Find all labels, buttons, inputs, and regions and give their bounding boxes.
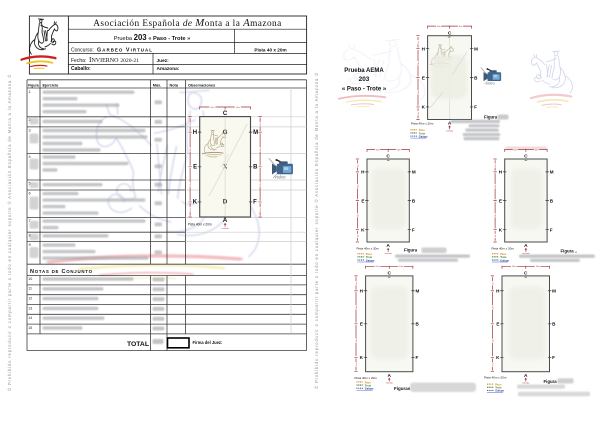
svg-text:Máx.: Máx. — [153, 84, 161, 88]
svg-text:H: H — [193, 130, 197, 136]
svg-text:C: C — [448, 30, 452, 36]
svg-text:E: E — [422, 75, 425, 80]
svg-text:6m: 6m — [357, 234, 359, 237]
svg-text:10m: 10m — [399, 266, 403, 268]
svg-text:6m: 6m — [190, 123, 192, 126]
svg-text:15: 15 — [28, 326, 32, 330]
svg-text:C: C — [386, 154, 390, 160]
svg-text:Pista 40m x 20m: Pista 40m x 20m — [492, 247, 515, 251]
svg-text:14m: 14m — [495, 213, 497, 217]
svg-text:14: 14 — [28, 316, 32, 320]
svg-text:10m: 10m — [536, 266, 540, 268]
svg-text:E: E — [361, 198, 364, 203]
svg-text:Figura: Figura — [544, 379, 558, 384]
svg-text:6m: 6m — [260, 208, 262, 211]
svg-text:E: E — [360, 322, 363, 327]
svg-text:10m: 10m — [376, 149, 380, 151]
svg-text:11: 11 — [28, 287, 32, 291]
svg-text:F: F — [550, 227, 553, 232]
svg-text:« Paso - Trote »: « Paso - Trote » — [342, 87, 387, 93]
svg-text:10m: 10m — [534, 149, 538, 151]
svg-text:Prueba AEMA: Prueba AEMA — [344, 68, 384, 74]
svg-text:6m: 6m — [495, 234, 497, 237]
svg-text:Figura: Figura — [404, 248, 418, 253]
svg-text:F: F — [474, 105, 477, 110]
svg-text:Fecha:: Fecha: — [71, 58, 86, 64]
svg-text:Concurso:: Concurso: — [71, 47, 94, 53]
svg-text:C: C — [223, 111, 228, 117]
svg-text:Amazona:: Amazona: — [157, 66, 180, 72]
svg-text:14m: 14m — [260, 147, 262, 151]
svg-text:Figura: Figura — [28, 83, 38, 87]
svg-text:B: B — [253, 165, 258, 171]
svg-text:6m: 6m — [495, 164, 497, 167]
svg-text:6m: 6m — [260, 123, 262, 126]
svg-text:video: video — [486, 82, 495, 86]
svg-text:Ejercicio: Ejercicio — [43, 84, 60, 88]
svg-text:M: M — [474, 46, 478, 51]
svg-text:F: F — [416, 355, 419, 360]
svg-text:Pista 40m x 20m: Pista 40m x 20m — [484, 375, 507, 379]
svg-text:6m: 6m — [190, 208, 192, 211]
svg-text:C: C — [524, 154, 528, 160]
svg-text:14m: 14m — [492, 338, 494, 342]
svg-text:10m: 10m — [375, 266, 379, 268]
svg-text:Galope: Galope — [500, 258, 509, 262]
svg-text:Pista 40m x 20m: Pista 40m x 20m — [355, 376, 378, 380]
svg-text:14m: 14m — [357, 184, 359, 188]
svg-text:14m: 14m — [190, 182, 192, 186]
svg-text:6m: 6m — [357, 164, 359, 167]
svg-text:Pista 40m x 20m: Pista 40m x 20m — [357, 247, 380, 251]
svg-text:C: C — [524, 271, 528, 277]
svg-text:14m: 14m — [260, 182, 262, 186]
svg-text:Firma del Juez:: Firma del Juez: — [193, 340, 223, 345]
svg-text:9: 9 — [29, 243, 31, 247]
svg-text:Figura ..: Figura .. — [561, 248, 578, 253]
svg-text:10m: 10m — [459, 26, 463, 28]
svg-text:A: A — [223, 218, 228, 224]
svg-text:Galope: Galope — [365, 387, 374, 391]
svg-text:E: E — [499, 198, 502, 203]
svg-text:6m: 6m — [356, 282, 358, 285]
svg-text:14m: 14m — [190, 147, 192, 151]
svg-text:14m: 14m — [495, 184, 497, 188]
svg-text:Asociación Española de Monta a: Asociación Española de Monta a la Amazon… — [93, 17, 281, 29]
svg-text:© Prohibido reproducir o compa: © Prohibido reproducir o compartir parte… — [7, 74, 12, 391]
svg-text:10m: 10m — [437, 26, 441, 28]
svg-text:10m: 10m — [397, 149, 401, 151]
svg-text:6m: 6m — [492, 363, 494, 366]
svg-text:13: 13 — [28, 306, 32, 310]
svg-text:4: 4 — [29, 155, 31, 159]
svg-text:M: M — [412, 170, 416, 175]
svg-text:K: K — [193, 200, 198, 206]
svg-text:entrada: entrada — [386, 382, 394, 385]
svg-text:F: F — [253, 200, 257, 206]
svg-text:Pista 40m x 20m: Pista 40m x 20m — [411, 122, 434, 126]
svg-text:1: 1 — [29, 90, 31, 94]
svg-text:10m: 10m — [236, 107, 240, 109]
svg-text:E: E — [193, 165, 197, 171]
svg-text:12: 12 — [28, 297, 32, 301]
svg-text:entrada: entrada — [385, 252, 393, 255]
svg-text:TOTAL: TOTAL — [127, 341, 149, 348]
svg-text:M: M — [416, 289, 420, 294]
svg-text:M: M — [253, 130, 258, 136]
svg-text:14m: 14m — [357, 213, 359, 217]
svg-text:F: F — [552, 355, 555, 360]
svg-text:6m: 6m — [418, 111, 420, 114]
svg-text:14m: 14m — [356, 338, 358, 342]
svg-text:3: 3 — [29, 128, 31, 132]
svg-text:entrada: entrada — [522, 252, 530, 255]
svg-text:M: M — [552, 289, 556, 294]
svg-text:E: E — [496, 322, 499, 327]
svg-text:video: video — [275, 175, 286, 180]
svg-text:Observaciones: Observaciones — [188, 84, 215, 88]
svg-text:10m: 10m — [513, 149, 517, 151]
svg-text:entrada: entrada — [446, 129, 454, 132]
svg-text:Juez:: Juez: — [157, 58, 170, 64]
svg-text:Galope: Galope — [366, 258, 375, 262]
svg-text:10m: 10m — [512, 266, 516, 268]
svg-text:14m: 14m — [418, 61, 420, 65]
svg-text:M: M — [550, 170, 554, 175]
svg-text:14m: 14m — [418, 90, 420, 94]
svg-text:10m: 10m — [210, 107, 214, 109]
svg-text:6m: 6m — [418, 40, 420, 43]
svg-text:6m: 6m — [492, 282, 494, 285]
svg-text:Caballo:: Caballo: — [71, 66, 91, 72]
svg-text:Figura: Figura — [484, 114, 498, 119]
svg-text:6m: 6m — [356, 363, 358, 366]
svg-text:Galope: Galope — [419, 134, 428, 138]
svg-text:Galope: Galope — [495, 389, 504, 393]
svg-text:© Prohibido reproducir o compa: © Prohibido reproducir o compartir parte… — [314, 72, 319, 389]
svg-text:Pista 40 x 20m: Pista 40 x 20m — [254, 47, 286, 52]
svg-text:Nota: Nota — [170, 84, 179, 88]
svg-text:6: 6 — [29, 191, 31, 195]
svg-text:14m: 14m — [492, 305, 494, 309]
svg-text:10: 10 — [28, 277, 32, 281]
svg-text:entrada: entrada — [222, 227, 230, 230]
svg-text:203: 203 — [359, 76, 370, 83]
svg-text:entrada: entrada — [522, 382, 530, 385]
svg-text:C: C — [388, 271, 392, 277]
svg-text:Figuras: Figuras — [394, 386, 411, 391]
svg-text:14m: 14m — [356, 305, 358, 309]
svg-text:F: F — [412, 227, 415, 232]
svg-text:Pista 40m x 20m: Pista 40m x 20m — [188, 222, 212, 226]
